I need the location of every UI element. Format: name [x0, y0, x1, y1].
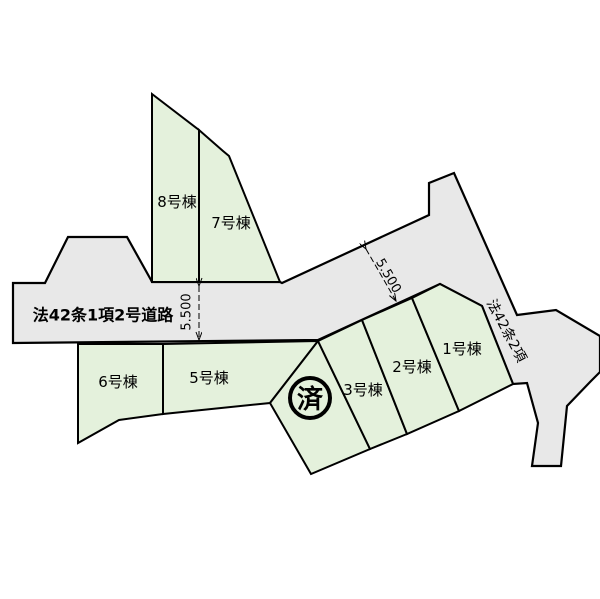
lot-6-polygon	[78, 344, 163, 443]
plot-map-page: 5.500 5.500 法42条1項2号道路 法42条2項 8号棟 7号棟 6号…	[0, 0, 600, 599]
plot-map: 5.500 5.500 法42条1項2号道路 法42条2項 8号棟 7号棟 6号…	[0, 0, 600, 599]
lot-3-label: 3号棟	[343, 381, 383, 399]
lot-8-label: 8号棟	[157, 193, 197, 211]
lot-6-label: 6号棟	[98, 373, 138, 391]
lot-5-label: 5号棟	[189, 369, 229, 387]
lot-8-polygon	[152, 94, 199, 282]
lot-7-label: 7号棟	[211, 214, 251, 232]
road-name-label: 法42条1項2号道路	[33, 306, 175, 325]
lot-2-label: 2号棟	[392, 358, 432, 376]
lot-1-label: 1号棟	[442, 340, 482, 358]
sold-marker-label: 済	[297, 384, 324, 415]
dimension-vertical-label: 5.500	[180, 293, 195, 330]
lot-7-polygon	[199, 130, 280, 282]
